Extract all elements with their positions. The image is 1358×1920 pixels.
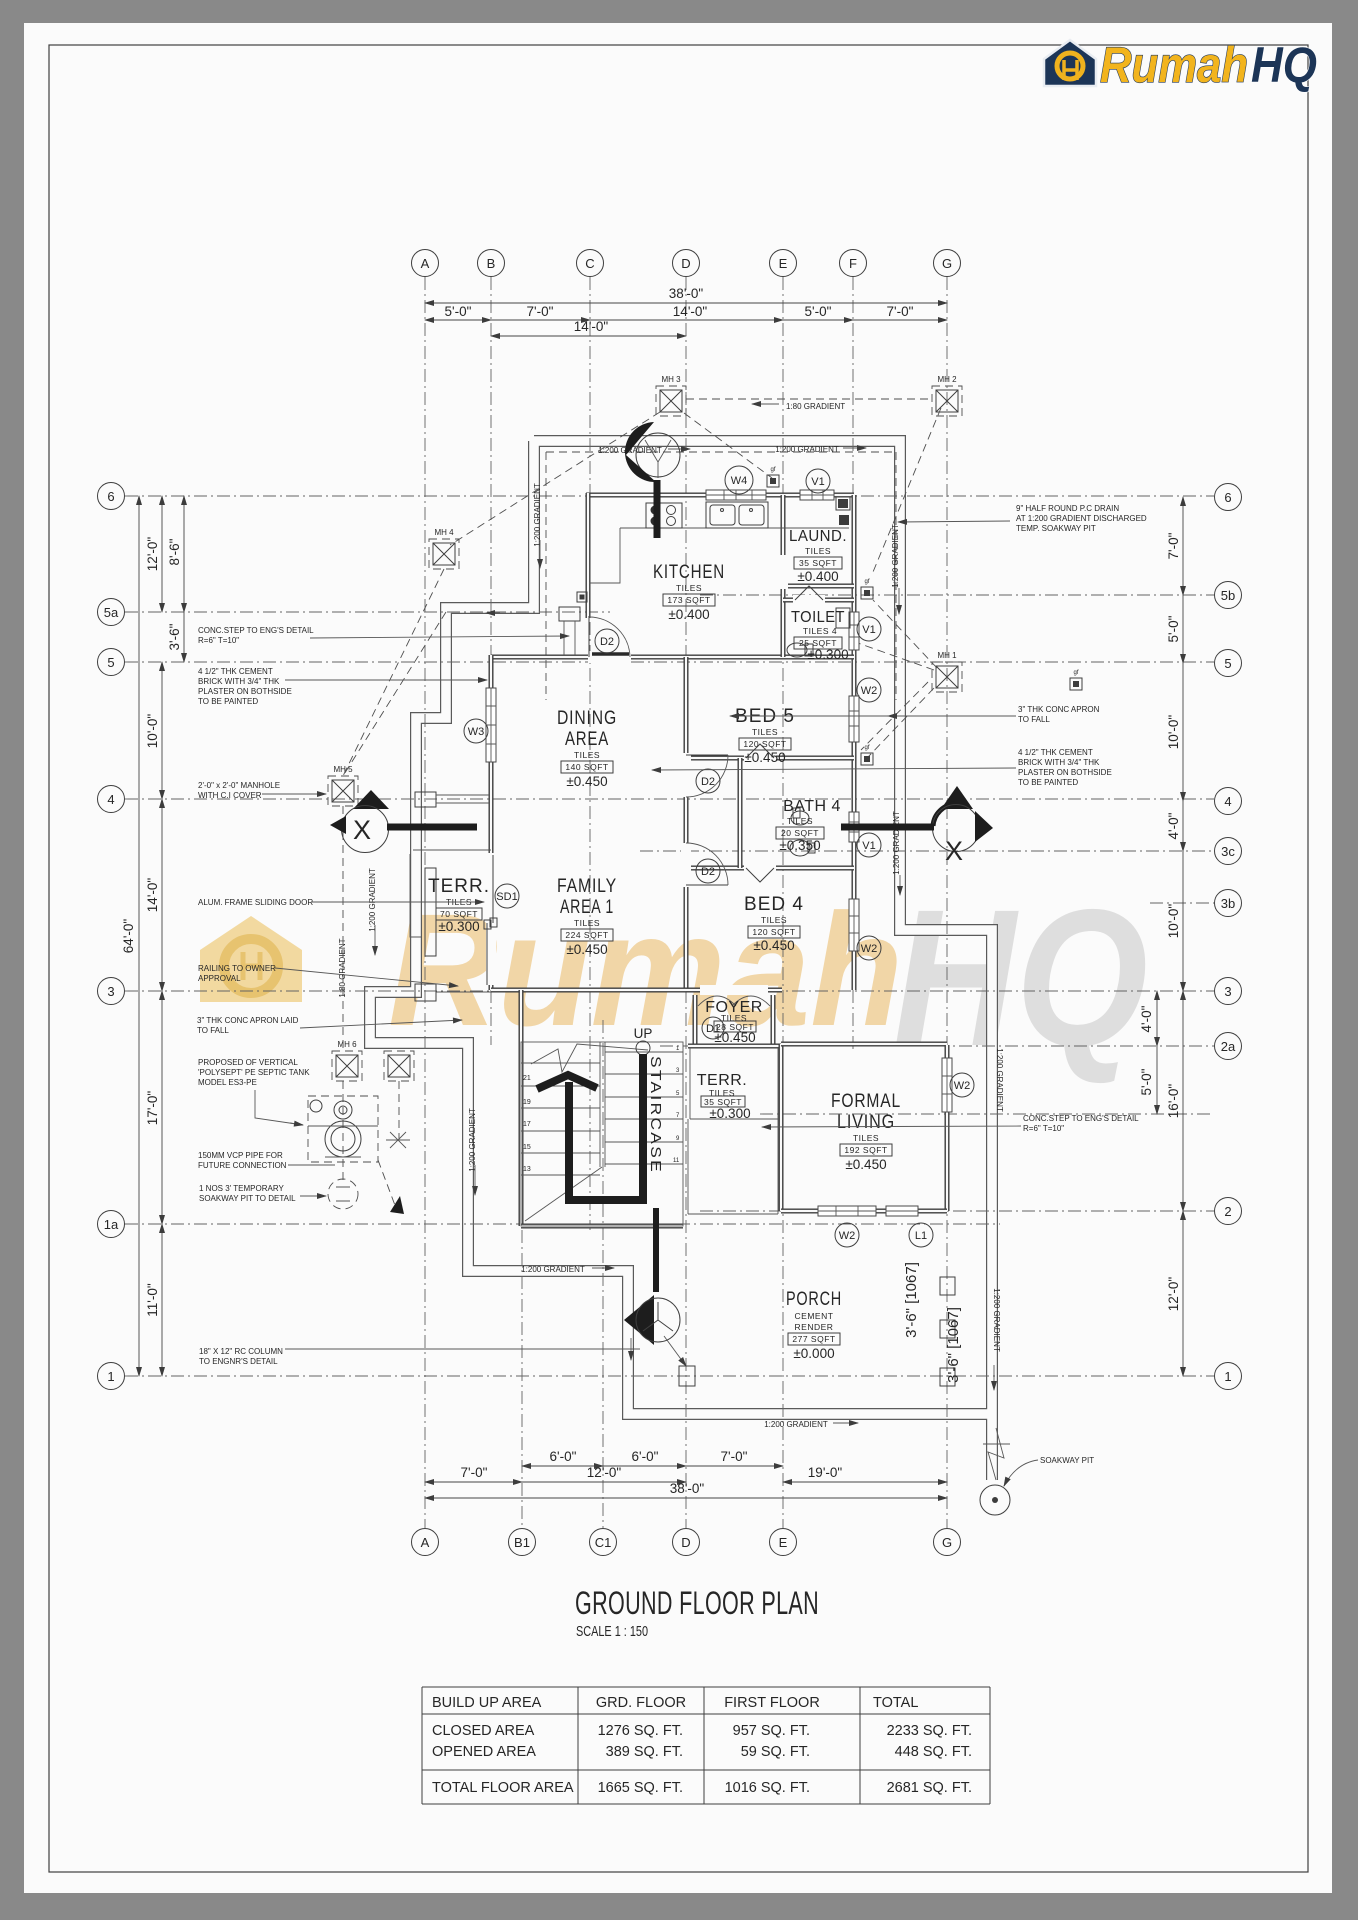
svg-text:L1: L1 [915, 1230, 927, 1242]
svg-text:W3: W3 [468, 726, 485, 738]
svg-text:1:80 GRADIENT: 1:80 GRADIENT [338, 938, 347, 997]
svg-text:17'-0": 17'-0" [145, 1091, 160, 1126]
svg-text:7'-0": 7'-0" [461, 1465, 488, 1480]
svg-text:TERR.: TERR. [697, 1072, 748, 1089]
svg-text:TOTAL: TOTAL [873, 1695, 918, 1711]
svg-text:173 SQFT: 173 SQFT [667, 595, 710, 605]
svg-text:7'-0": 7'-0" [721, 1449, 748, 1464]
svg-text:1: 1 [1224, 1369, 1231, 1384]
svg-text:1 NOS 3' TEMPORARY: 1 NOS 3' TEMPORARY [199, 1184, 284, 1193]
svg-text:FIRST FLOOR: FIRST FLOOR [724, 1695, 820, 1711]
svg-text:F: F [849, 256, 857, 271]
svg-text:3c: 3c [1221, 844, 1235, 859]
svg-text:A: A [421, 1535, 430, 1550]
svg-text:10'-0": 10'-0" [1166, 715, 1181, 750]
svg-text:5'-0": 5'-0" [445, 304, 472, 319]
svg-text:MH 1: MH 1 [937, 651, 957, 660]
svg-text:G: G [942, 256, 952, 271]
svg-text:TILES: TILES [761, 915, 787, 925]
svg-text:PLASTER ON BOTHSIDE: PLASTER ON BOTHSIDE [198, 687, 292, 696]
svg-text:13: 13 [523, 1166, 531, 1173]
svg-text:±0.450: ±0.450 [566, 942, 607, 957]
svg-text:PLASTER ON BOTHSIDE: PLASTER ON BOTHSIDE [1018, 768, 1112, 777]
svg-text:5'-0": 5'-0" [1166, 615, 1181, 642]
svg-text:±0.300: ±0.300 [807, 647, 848, 662]
svg-text:TILES: TILES [805, 546, 831, 556]
svg-text:1:80 GRADIENT: 1:80 GRADIENT [786, 402, 845, 411]
svg-text:4'-0": 4'-0" [1139, 1005, 1154, 1032]
svg-text:6'-0": 6'-0" [550, 1449, 577, 1464]
svg-text:7'-0": 7'-0" [1166, 532, 1181, 559]
svg-text:TERR.: TERR. [428, 876, 490, 897]
svg-text:FUTURE CONNECTION: FUTURE CONNECTION [198, 1161, 287, 1170]
svg-text:8'-6": 8'-6" [167, 538, 182, 565]
svg-text:3'-6" [1067]: 3'-6" [1067] [945, 1307, 962, 1383]
svg-text:5b: 5b [1221, 588, 1235, 603]
svg-text:D1: D1 [706, 1023, 720, 1035]
svg-text:X: X [945, 836, 963, 866]
svg-text:W2: W2 [954, 1080, 971, 1092]
svg-text:BATH 4: BATH 4 [783, 798, 841, 815]
svg-text:4 1/2" THK CEMENT: 4 1/2" THK CEMENT [1018, 748, 1093, 757]
svg-text:TILES: TILES [574, 750, 600, 760]
svg-text:277 SQFT: 277 SQFT [792, 1334, 835, 1344]
svg-text:1016 SQ. FT.: 1016 SQ. FT. [725, 1780, 810, 1796]
svg-text:14'-0": 14'-0" [574, 319, 609, 334]
svg-text:10'-0": 10'-0" [145, 714, 160, 749]
svg-text:R=6" T=10": R=6" T=10" [198, 636, 239, 645]
svg-text:14'-0": 14'-0" [673, 304, 708, 319]
svg-text:2a: 2a [1221, 1039, 1236, 1054]
svg-text:E: E [779, 256, 788, 271]
svg-text:SD1: SD1 [496, 891, 517, 903]
svg-text:WITH C.I COVER: WITH C.I COVER [198, 791, 262, 800]
svg-text:W2: W2 [861, 943, 878, 955]
svg-text:TOTAL FLOOR AREA: TOTAL FLOOR AREA [432, 1780, 574, 1796]
svg-text:gf: gf [864, 745, 869, 751]
svg-text:3'-6" [1067]: 3'-6" [1067] [903, 1262, 920, 1338]
svg-text:CEMENT: CEMENT [795, 1311, 834, 1321]
svg-text:ALUM. FRAME SLIDING DOOR: ALUM. FRAME SLIDING DOOR [198, 898, 313, 907]
svg-text:RAILING TO OWNER: RAILING TO OWNER [198, 964, 276, 973]
svg-text:TOILET: TOILET [791, 609, 845, 626]
svg-text:BED 4: BED 4 [744, 894, 804, 915]
svg-text:192 SQFT: 192 SQFT [844, 1145, 887, 1155]
svg-text:1: 1 [107, 1369, 114, 1384]
svg-text:1:200 GRADIENT: 1:200 GRADIENT [892, 811, 901, 875]
svg-text:TILES 4: TILES 4 [803, 626, 837, 636]
svg-text:TO FALL: TO FALL [1018, 715, 1050, 724]
svg-text:MH 6: MH 6 [337, 1040, 357, 1049]
svg-text:MH 5: MH 5 [333, 765, 353, 774]
svg-text:18" X 12" RC COLUMN: 18" X 12" RC COLUMN [199, 1347, 283, 1356]
svg-text:W2: W2 [839, 1230, 856, 1242]
svg-text:6'-0": 6'-0" [632, 1449, 659, 1464]
svg-text:1:200 GRADIENT: 1:200 GRADIENT [468, 1108, 477, 1172]
svg-text:2'-0" x 2'-0" MANHOLE: 2'-0" x 2'-0" MANHOLE [198, 781, 280, 790]
svg-text:1:200 GRADIENT: 1:200 GRADIENT [775, 445, 839, 454]
svg-text:G: G [942, 1535, 952, 1550]
svg-text:1:200 GRADIENT: 1:200 GRADIENT [764, 1420, 828, 1429]
svg-text:5'-0": 5'-0" [805, 304, 832, 319]
svg-text:PROPOSED OF VERTICAL: PROPOSED OF VERTICAL [198, 1058, 298, 1067]
svg-text:±0.300: ±0.300 [709, 1106, 750, 1121]
svg-text:2233 SQ. FT.: 2233 SQ. FT. [887, 1723, 972, 1739]
svg-text:B1: B1 [514, 1535, 530, 1550]
svg-text:GROUND FLOOR PLAN: GROUND FLOOR PLAN [575, 1585, 819, 1621]
svg-text:STAIRCASE: STAIRCASE [647, 1056, 664, 1174]
svg-text:±0.450: ±0.450 [566, 774, 607, 789]
svg-text:CONC.STEP TO ENG'S DETAIL: CONC.STEP TO ENG'S DETAIL [1023, 1114, 1139, 1123]
svg-text:5'-0": 5'-0" [1139, 1068, 1154, 1095]
svg-text:6: 6 [107, 489, 114, 504]
svg-text:59 SQ. FT.: 59 SQ. FT. [741, 1744, 810, 1760]
svg-text:±0.450: ±0.450 [744, 750, 785, 765]
svg-text:TO BE PAINTED: TO BE PAINTED [198, 697, 258, 706]
svg-text:LAUND.: LAUND. [789, 528, 847, 545]
svg-text:±0.450: ±0.450 [845, 1157, 886, 1172]
svg-text:TILES: TILES [787, 816, 813, 826]
svg-text:BUILD UP AREA: BUILD UP AREA [432, 1695, 542, 1711]
svg-text:B: B [487, 256, 496, 271]
svg-text:1:200 GRADIENT: 1:200 GRADIENT [992, 1288, 1001, 1352]
svg-text:D2: D2 [701, 866, 715, 878]
svg-text:OPENED AREA: OPENED AREA [432, 1744, 536, 1760]
svg-text:11: 11 [673, 1158, 680, 1164]
svg-text:9" HALF ROUND P.C DRAIN: 9" HALF ROUND P.C DRAIN [1016, 504, 1119, 513]
svg-text:LIVING: LIVING [837, 1112, 895, 1133]
svg-text:TEMP. SOAKWAY PIT: TEMP. SOAKWAY PIT [1016, 524, 1096, 533]
svg-text:W2: W2 [861, 685, 878, 697]
svg-text:120 SQFT: 120 SQFT [743, 739, 786, 749]
svg-text:7'-0": 7'-0" [527, 304, 554, 319]
svg-text:KITCHEN: KITCHEN [653, 562, 725, 583]
svg-text:±0.000: ±0.000 [793, 1346, 834, 1361]
svg-text:E: E [779, 1535, 788, 1550]
svg-text:5: 5 [107, 655, 114, 670]
svg-text:14'-0": 14'-0" [145, 878, 160, 913]
svg-text:'POLYSEPT' PE SEPTIC TANK: 'POLYSEPT' PE SEPTIC TANK [198, 1068, 310, 1077]
svg-text:TILES: TILES [853, 1133, 879, 1143]
svg-text:3b: 3b [1221, 896, 1235, 911]
svg-text:3'-6": 3'-6" [167, 623, 182, 650]
svg-text:4 1/2" THK CEMENT: 4 1/2" THK CEMENT [198, 667, 273, 676]
svg-text:1:200 GRADIENT: 1:200 GRADIENT [368, 868, 377, 932]
svg-text:Rumah: Rumah [1100, 37, 1248, 93]
svg-text:21: 21 [523, 1075, 531, 1082]
svg-text:W4: W4 [731, 475, 748, 487]
svg-text:7'-0": 7'-0" [887, 304, 914, 319]
svg-text:140 SQFT: 140 SQFT [565, 762, 608, 772]
svg-text:2681 SQ. FT.: 2681 SQ. FT. [887, 1780, 972, 1796]
svg-text:TILES: TILES [752, 727, 778, 737]
svg-text:35 SQFT: 35 SQFT [799, 558, 837, 568]
svg-text:MODEL ES3-PE: MODEL ES3-PE [198, 1078, 257, 1087]
svg-text:D: D [681, 256, 690, 271]
svg-text:PORCH: PORCH [786, 1289, 842, 1310]
svg-text:D: D [681, 1535, 690, 1550]
svg-text:19'-0": 19'-0" [808, 1465, 843, 1480]
svg-text:17: 17 [523, 1121, 531, 1128]
svg-text:±0.450: ±0.450 [714, 1030, 755, 1045]
svg-text:HQ: HQ [893, 869, 1148, 1087]
svg-text:38'-0": 38'-0" [670, 1481, 705, 1496]
svg-text:TO BE PAINTED: TO BE PAINTED [1018, 778, 1078, 787]
svg-text:16'-0": 16'-0" [1166, 1084, 1181, 1119]
svg-text:±0.450: ±0.450 [753, 938, 794, 953]
svg-text:5: 5 [1224, 656, 1231, 671]
svg-text:V1: V1 [862, 840, 875, 852]
svg-text:957 SQ. FT.: 957 SQ. FT. [733, 1723, 810, 1739]
svg-text:±0.400: ±0.400 [668, 607, 709, 622]
svg-text:TO ENGNR'S DETAIL: TO ENGNR'S DETAIL [199, 1357, 278, 1366]
svg-text:BRICK WITH 3/4" THK: BRICK WITH 3/4" THK [1018, 758, 1100, 767]
svg-text:FAMILY: FAMILY [557, 876, 617, 897]
svg-text:1:200 GRADIENT: 1:200 GRADIENT [521, 1265, 585, 1274]
svg-text:±0.300: ±0.300 [438, 919, 479, 934]
svg-text:3: 3 [107, 984, 114, 999]
svg-text:120 SQFT: 120 SQFT [752, 927, 795, 937]
svg-text:15: 15 [523, 1144, 531, 1151]
svg-text:70 SQFT: 70 SQFT [440, 909, 478, 919]
svg-text:FORMAL: FORMAL [831, 1091, 901, 1112]
svg-text:CLOSED AREA: CLOSED AREA [432, 1723, 535, 1739]
svg-text:DINING: DINING [557, 708, 617, 729]
svg-text:1:200 GRADIENT: 1:200 GRADIENT [533, 483, 542, 547]
svg-text:X: X [353, 815, 371, 845]
svg-text:gf: gf [1073, 670, 1078, 676]
svg-text:V1: V1 [811, 476, 824, 488]
svg-text:CONC.STEP TO ENG'S DETAIL: CONC.STEP TO ENG'S DETAIL [198, 626, 314, 635]
svg-text:R=6" T=10": R=6" T=10" [1023, 1124, 1064, 1133]
svg-text:3: 3 [1224, 984, 1231, 999]
svg-text:TO FALL: TO FALL [197, 1026, 229, 1035]
svg-text:D2: D2 [701, 776, 715, 788]
svg-text:RENDER: RENDER [795, 1322, 834, 1332]
svg-text:C1: C1 [595, 1535, 612, 1550]
svg-text:4: 4 [107, 792, 114, 807]
svg-text:64'-0": 64'-0" [121, 919, 136, 954]
svg-text:MH 4: MH 4 [434, 528, 454, 537]
svg-text:gf: gf [770, 467, 775, 473]
svg-text:6: 6 [1224, 490, 1231, 505]
svg-text:1a: 1a [104, 1217, 119, 1232]
svg-text:±0.350: ±0.350 [779, 838, 820, 853]
svg-text:224 SQFT: 224 SQFT [565, 930, 608, 940]
svg-text:5a: 5a [104, 605, 119, 620]
svg-text:V1: V1 [862, 624, 875, 636]
svg-text:HQ: HQ [1251, 37, 1317, 93]
svg-text:2: 2 [1224, 1204, 1231, 1219]
svg-text:A: A [421, 256, 430, 271]
svg-text:TILES: TILES [574, 918, 600, 928]
svg-text:MH 2: MH 2 [937, 375, 957, 384]
svg-text:±0.400: ±0.400 [797, 569, 838, 584]
svg-text:4'-0": 4'-0" [1166, 812, 1181, 839]
svg-text:MH 3: MH 3 [661, 375, 681, 384]
svg-text:BED 5: BED 5 [735, 706, 795, 727]
svg-text:SOAKWAY PIT TO DETAIL: SOAKWAY PIT TO DETAIL [199, 1194, 296, 1203]
svg-text:1665 SQ. FT.: 1665 SQ. FT. [598, 1780, 683, 1796]
svg-text:AT 1:200 GRADIENT DISCHARGED: AT 1:200 GRADIENT DISCHARGED [1016, 514, 1147, 523]
svg-text:1276 SQ. FT.: 1276 SQ. FT. [598, 1723, 683, 1739]
svg-text:gf: gf [864, 579, 869, 585]
svg-text:AREA: AREA [565, 729, 609, 750]
svg-text:150MM VCP PIPE FOR: 150MM VCP PIPE FOR [198, 1151, 283, 1160]
svg-text:1:200 GRADIENT: 1:200 GRADIENT [891, 524, 900, 588]
svg-text:GRD. FLOOR: GRD. FLOOR [596, 1695, 686, 1711]
svg-text:19: 19 [523, 1099, 531, 1106]
svg-text:12'-0": 12'-0" [145, 537, 160, 572]
svg-text:BRICK WITH 3/4" THK: BRICK WITH 3/4" THK [198, 677, 280, 686]
svg-text:3" THK CONC APRON LAID: 3" THK CONC APRON LAID [197, 1016, 299, 1025]
svg-text:AREA 1: AREA 1 [560, 897, 614, 918]
svg-text:20 SQFT: 20 SQFT [781, 828, 819, 838]
svg-text:12'-0": 12'-0" [1166, 1277, 1181, 1312]
svg-text:11'-0": 11'-0" [145, 1283, 160, 1317]
svg-text:389 SQ. FT.: 389 SQ. FT. [606, 1744, 683, 1760]
svg-text:UP: UP [634, 1026, 653, 1041]
svg-text:12'-0": 12'-0" [587, 1465, 622, 1480]
svg-text:448 SQ. FT.: 448 SQ. FT. [895, 1744, 972, 1760]
svg-text:1:200 GRADIENT: 1:200 GRADIENT [995, 1048, 1004, 1112]
svg-text:SCALE 1 : 150: SCALE 1 : 150 [576, 1623, 648, 1640]
svg-text:SOAKWAY PIT: SOAKWAY PIT [1040, 1456, 1094, 1465]
svg-text:38'-0": 38'-0" [669, 286, 704, 301]
svg-text:4: 4 [1224, 794, 1231, 809]
svg-text:TILES: TILES [676, 583, 702, 593]
svg-text:C: C [585, 256, 594, 271]
svg-text:APPROVAL: APPROVAL [198, 974, 241, 983]
svg-text:D2: D2 [600, 636, 614, 648]
svg-text:3" THK CONC APRON: 3" THK CONC APRON [1018, 705, 1100, 714]
svg-text:10'-0": 10'-0" [1166, 904, 1181, 939]
